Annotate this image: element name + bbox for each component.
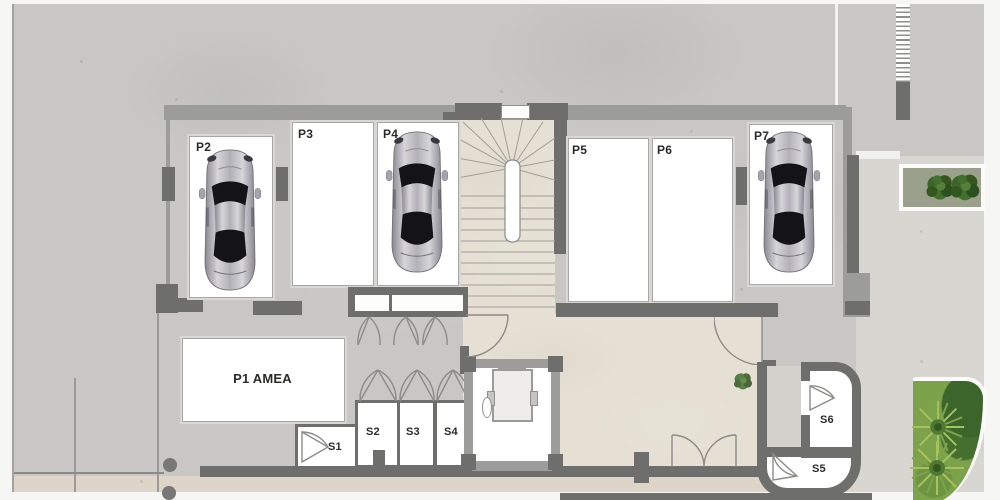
shrub-icon: [731, 369, 755, 393]
texture-speckles: [80, 60, 83, 63]
storage-label-s6: S6: [820, 414, 834, 426]
boundary-line-white: [835, 4, 838, 118]
parking-label-p5: P5: [572, 143, 587, 157]
shrub-icon: [946, 168, 984, 206]
elevator-cab: [492, 369, 533, 422]
elevator-wall: [464, 365, 473, 465]
elevator-corner-pillar: [548, 356, 563, 372]
door-arc-icon: [421, 314, 449, 347]
parking-spot-p6: [652, 138, 733, 302]
wall-niche: [392, 295, 463, 311]
wall-segment: [162, 298, 203, 312]
door-arc-icon: [714, 315, 764, 365]
storage-label-s5: S5: [812, 463, 826, 475]
bollard: [162, 486, 176, 500]
elevator-fixture: [482, 397, 492, 418]
car-top-view-icon: [385, 130, 449, 274]
wall-segment: [896, 82, 910, 120]
plot-boundary-line: [12, 4, 14, 492]
elevator-wall: [551, 365, 560, 465]
pillar: [634, 452, 649, 483]
wall-segment: [845, 301, 870, 315]
wall-segment: [253, 301, 302, 315]
pillar: [736, 167, 748, 205]
door-arc-icon: [464, 313, 510, 357]
parking-label-p1: P1 AMEA: [182, 371, 343, 386]
stair-window: [501, 105, 530, 119]
parking-label-p6: P6: [657, 143, 672, 157]
wall-segment: [847, 155, 859, 275]
door-arc-icon: [392, 314, 420, 347]
pillar: [162, 167, 175, 201]
storage-label-s2: S2: [366, 426, 380, 438]
street-strip: [14, 476, 860, 492]
elevator-corner-pillar: [548, 454, 563, 470]
door-leaf-icon: [299, 429, 333, 465]
floor-plan: P2 P3 P4 P5 P6 P7 P1 AMEA S1 S2 S3 S4: [0, 0, 1000, 500]
wall-niche: [355, 295, 389, 311]
elevator-corner-pillar: [461, 356, 476, 372]
pillar: [276, 167, 288, 201]
wall-bottom: [200, 466, 636, 477]
parking-spot-p5: [568, 138, 649, 302]
parking-label-p2: P2: [196, 140, 211, 154]
door-arc-icon: [356, 314, 382, 347]
elevator-wall: [472, 461, 552, 471]
storage-alcove: [767, 366, 801, 448]
boundary-line: [157, 310, 159, 492]
parking-label-p4: P4: [383, 127, 398, 141]
storage-label-s4: S4: [444, 426, 458, 438]
parking-spot-p3: [292, 122, 374, 286]
palm-grass-icon: [907, 438, 967, 498]
thin-wall-line: [14, 472, 164, 474]
staircase: [457, 118, 555, 314]
double-door-arc-icon: [358, 367, 398, 403]
threshold-gap: [856, 151, 900, 159]
parking-label-p3: P3: [298, 127, 313, 141]
parking-label-p7: P7: [754, 129, 769, 143]
storage-label-s3: S3: [406, 426, 420, 438]
car-top-view-icon: [198, 148, 262, 292]
double-door-arc-icon: [398, 367, 436, 403]
car-top-view-icon: [757, 130, 821, 274]
boundary-line: [74, 378, 76, 492]
elevator-rail: [530, 391, 538, 406]
door-leaf-icon: [808, 384, 838, 414]
stair-wall-right: [554, 112, 567, 254]
elevator-corner-pillar: [461, 454, 476, 470]
bollard: [163, 458, 177, 472]
wall-segment: [757, 362, 767, 450]
double-door-arc-icon: [670, 431, 738, 471]
exterior-stair-hatch: [896, 4, 910, 82]
door-leaf-icon: [770, 452, 802, 484]
